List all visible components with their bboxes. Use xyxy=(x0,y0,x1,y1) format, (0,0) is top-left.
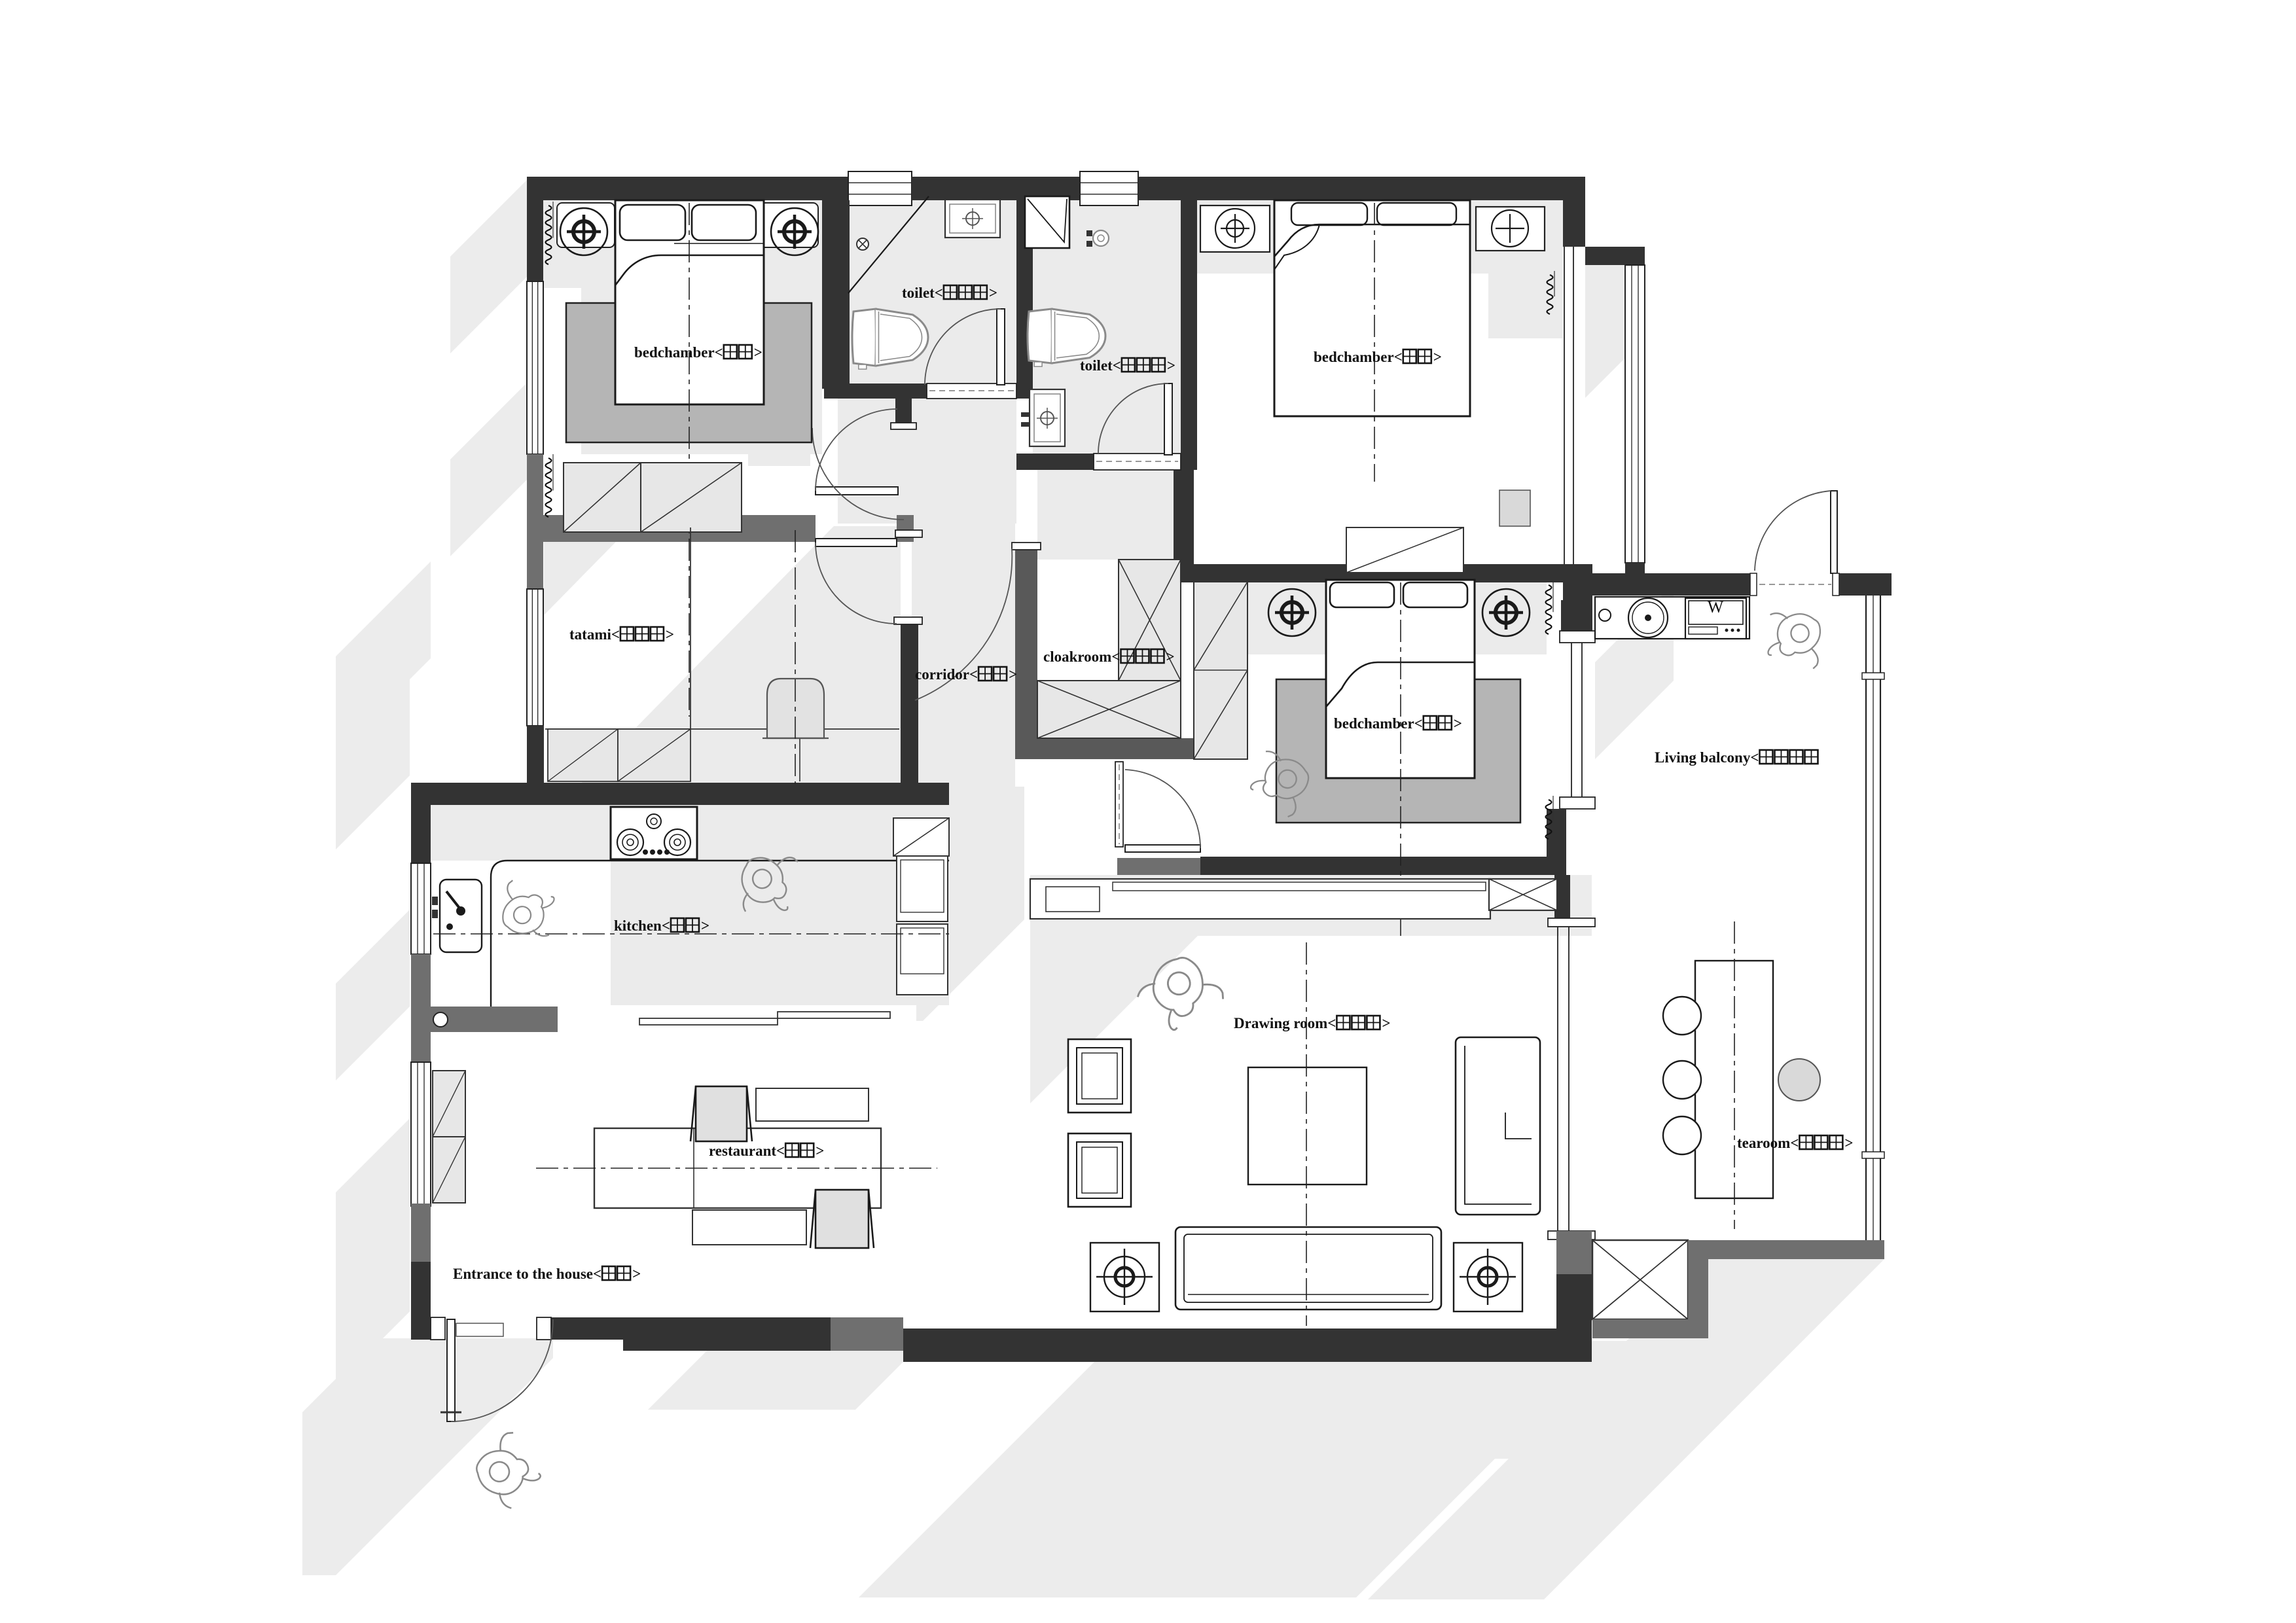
svg-text:>: > xyxy=(1382,1015,1390,1031)
svg-text:>: > xyxy=(1433,349,1442,365)
svg-text:tearoom<: tearoom< xyxy=(1737,1135,1799,1151)
svg-text:>: > xyxy=(666,626,674,643)
svg-text:>: > xyxy=(754,344,762,361)
svg-text:bedchamber<: bedchamber< xyxy=(1314,349,1403,365)
svg-text:bedchamber<: bedchamber< xyxy=(634,344,723,361)
svg-text:>: > xyxy=(632,1266,641,1282)
svg-text:corridor<: corridor< xyxy=(915,666,978,683)
svg-text:>: > xyxy=(1844,1135,1853,1151)
svg-text:>: > xyxy=(701,918,709,934)
svg-text:cloakroom<: cloakroom< xyxy=(1043,649,1120,665)
svg-text:>: > xyxy=(1454,715,1462,732)
svg-text:>: > xyxy=(1166,649,1174,665)
svg-text:>: > xyxy=(1167,357,1175,374)
svg-text:toilet<: toilet< xyxy=(902,285,943,301)
svg-text:>: > xyxy=(989,285,997,301)
svg-text:kitchen<: kitchen< xyxy=(614,918,670,934)
svg-text:Living balcony<: Living balcony< xyxy=(1655,749,1759,766)
svg-text:tatami<: tatami< xyxy=(569,626,620,643)
svg-text:>: > xyxy=(816,1143,824,1159)
svg-text:W: W xyxy=(1708,597,1724,616)
svg-text:>: > xyxy=(1009,666,1017,683)
svg-text:Drawing room<: Drawing room< xyxy=(1234,1015,1336,1031)
svg-text:Entrance to the house<: Entrance to the house< xyxy=(453,1266,601,1282)
svg-text:restaurant<: restaurant< xyxy=(709,1143,785,1159)
svg-text:bedchamber<: bedchamber< xyxy=(1334,715,1423,732)
svg-text:toilet<: toilet< xyxy=(1080,357,1121,374)
